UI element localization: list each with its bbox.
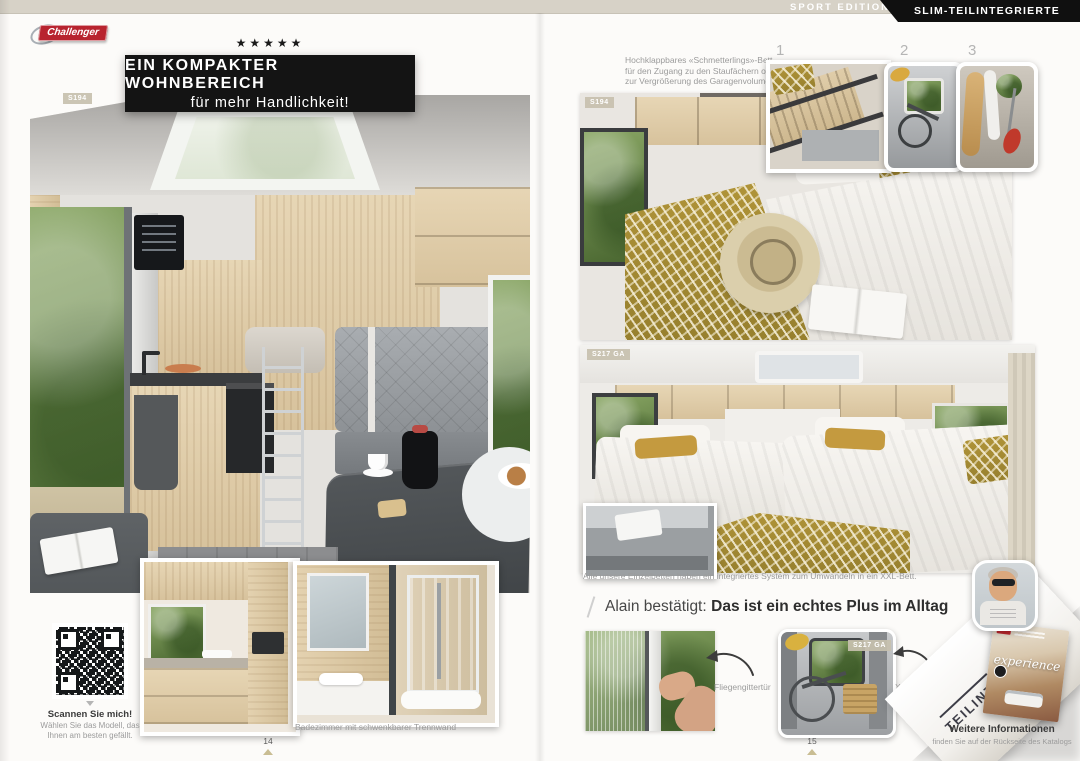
- right-overhead-cabinet: [415, 187, 530, 287]
- bathroom-caption: Badezimmer mit schwenkbarer Trennwand: [295, 722, 456, 733]
- qr-finder-topright: [101, 629, 122, 650]
- avatar-shirt-shape: [980, 601, 1026, 625]
- kitchen-counter-shape: [144, 658, 248, 668]
- edition-label: SPORT EDITION: [780, 2, 900, 13]
- living-area-photo: [30, 95, 530, 593]
- plant-shape: [996, 74, 1022, 98]
- coffee-pot-shape: [402, 431, 438, 489]
- center-fold-shadow: [535, 13, 545, 761]
- shower-tray-shape: [401, 691, 481, 709]
- thumb-photo-2: [884, 62, 964, 172]
- quote-line: Alain bestätigt: Das ist ein echtes Plus…: [605, 598, 948, 616]
- wooden-box-shape: [377, 499, 407, 519]
- avatar-sunglasses-shape: [992, 579, 1015, 586]
- rating-stars: ★★★★★: [170, 36, 370, 50]
- qr-title: Scannen Sie mich!: [30, 709, 150, 720]
- hat-crown-shape: [750, 239, 796, 285]
- kitchen-sink-shape: [202, 650, 232, 658]
- cover-camper-shape: [1004, 690, 1043, 709]
- model-badge: S194: [63, 93, 92, 104]
- page-number-right: 15: [802, 736, 822, 746]
- curtain-shape: [1008, 353, 1035, 573]
- bed-step-inset-photo: [583, 503, 717, 579]
- bathroom-photo: [293, 561, 499, 727]
- info-subtitle: finden Sie auf der Rückseite des Katalog…: [928, 737, 1076, 746]
- avatar-shirt-print: [990, 608, 1016, 618]
- catalog-spread: SPORT EDITION SLIM-TEILINTEGRIERTE Chall…: [0, 0, 1080, 761]
- paddle-blade-shape: [1000, 126, 1024, 156]
- category-label: SLIM-TEILINTEGRIERTE: [900, 5, 1060, 17]
- page-number-left: 14: [258, 736, 278, 746]
- category-bar: SLIM-TEILINTEGRIERTE: [880, 0, 1080, 22]
- shower-column-shape: [437, 583, 441, 679]
- bike-wheel-shape: [898, 114, 932, 148]
- page-edge-shadow: [0, 0, 10, 761]
- avatar-head-shape: [989, 571, 1017, 601]
- coffee-pot-lid-shape: [412, 425, 428, 433]
- twin-skylight-shape: [755, 351, 863, 383]
- kitchen-lower-cabinets: [144, 668, 248, 724]
- page-marker-left-icon: [263, 749, 273, 755]
- kitchen-photo: [140, 558, 300, 736]
- straw-hat-shape: [720, 213, 820, 313]
- flyscreen-caption: Fliegengittertür: [714, 682, 771, 693]
- skylight-glass: [175, 117, 355, 179]
- flyscreen-arrow-icon: [700, 645, 758, 679]
- right-gold-cushion: [825, 427, 886, 450]
- kitchen-flap-shape: [134, 395, 178, 490]
- avatar: [972, 560, 1038, 631]
- beds-caption: Alle unsere Einzelbetten haben ein integ…: [583, 571, 917, 582]
- qr-pointer-icon: [86, 701, 94, 706]
- seatbelt-strip-shape: [368, 327, 375, 432]
- cover-badge-dot: [993, 664, 1007, 678]
- headline-box: EIN KOMPAKTER WOHNBEREICH für mehr Handl…: [125, 55, 415, 112]
- faucet-shape: [142, 353, 146, 375]
- kitchen-window: [148, 604, 206, 664]
- qr-finder-topleft: [58, 629, 79, 650]
- thumb-photo-1: [766, 60, 891, 173]
- kitchen-upper-cabinets: [144, 562, 248, 600]
- qr-code: [56, 627, 124, 695]
- thumb-photo-3: [956, 62, 1038, 172]
- bathroom-mirror-shape: [307, 573, 369, 651]
- bathroom-sink-shape: [319, 673, 363, 685]
- quote-name: Alain bestätigt:: [605, 598, 707, 615]
- logo-badge: Challenger: [38, 25, 108, 41]
- flyscreen-mesh: [585, 631, 649, 731]
- headline: EIN KOMPAKTER WOHNBEREICH: [125, 57, 415, 93]
- breakfast-plate-shape: [165, 364, 201, 373]
- kayak-shape: [961, 71, 985, 156]
- subheadline: für mehr Handlichkeit!: [191, 95, 350, 111]
- qr-text: Wählen Sie das Modell, das Ihnen am best…: [35, 721, 145, 740]
- step-cloth-shape: [614, 509, 662, 541]
- shower-glass-shape: [407, 575, 479, 693]
- garage-basket-shape: [843, 684, 877, 714]
- garage-photo: S217 GA: [778, 629, 896, 738]
- quote-slash-icon: [587, 596, 596, 618]
- swivel-wall-shape: [389, 565, 396, 715]
- butterfly-bed-text: Hochklappbares «Schmetterlings»-Bett für…: [625, 55, 780, 87]
- quote-text: Das ist ein echtes Plus im Alltag: [711, 598, 948, 615]
- faucet-spout-shape: [142, 351, 160, 355]
- bed-model-badge: S194: [585, 97, 614, 108]
- kitchen-microwave-shape: [252, 632, 284, 654]
- step-base-shape: [586, 556, 708, 570]
- control-panel-display: [142, 225, 176, 255]
- info-block: Weitere Informationen finden Sie auf der…: [928, 724, 1076, 746]
- catalog-cover-thumb: experience: [983, 622, 1070, 723]
- page-marker-right-icon: [807, 749, 817, 755]
- qr-finder-bottomleft: [58, 672, 79, 693]
- bathroom-vanity-shape: [297, 681, 389, 715]
- thumb-number-2: 2: [900, 42, 908, 59]
- control-panel: [134, 215, 184, 270]
- thumb-number-3: 3: [968, 42, 976, 59]
- info-title: Weitere Informationen: [928, 724, 1076, 735]
- brand-logo: Challenger: [30, 22, 120, 44]
- coffee-cup-shape: [368, 454, 388, 470]
- twin-model-badge: S217 GA: [587, 349, 630, 360]
- storage-items-shape: [828, 134, 868, 152]
- thumb-number-1: 1: [776, 42, 784, 59]
- garage-model-badge: S217 GA: [848, 640, 891, 651]
- flyscreen-photo: [585, 631, 715, 731]
